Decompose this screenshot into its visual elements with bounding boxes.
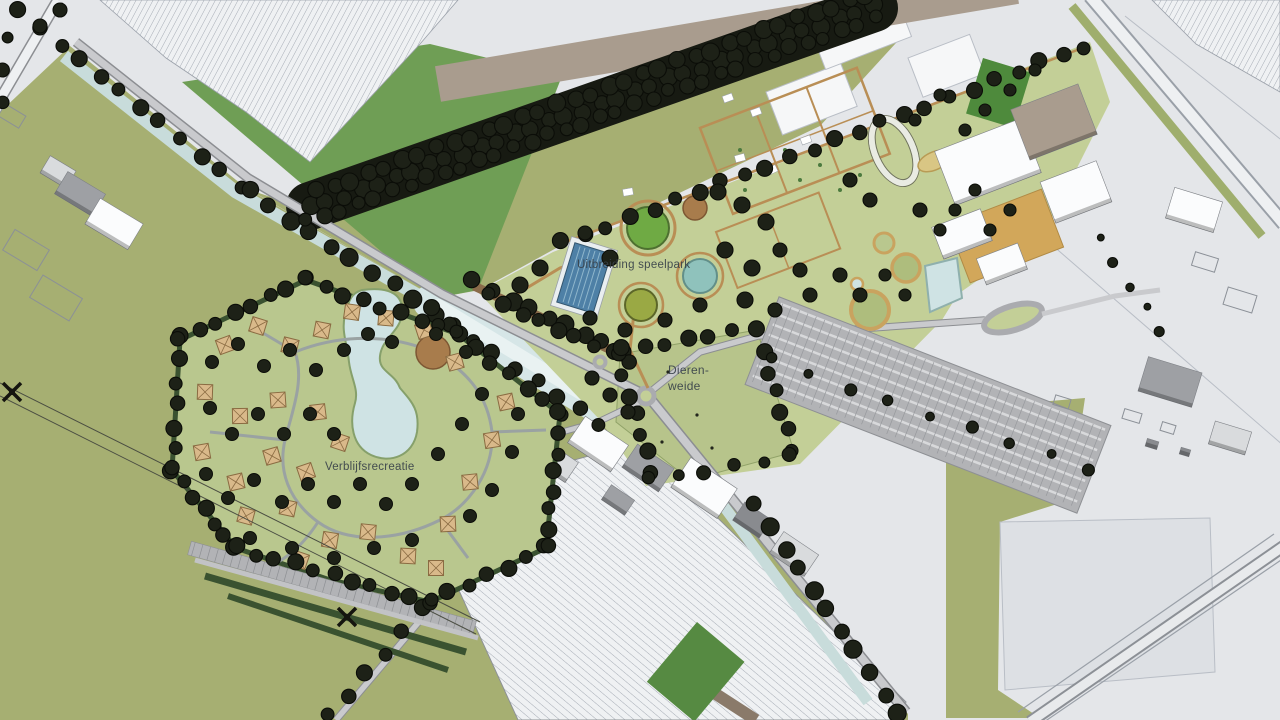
kiosk [622,188,633,197]
chalet [440,516,456,532]
chalet [429,561,444,576]
chalet [321,531,338,548]
label-dierenweide: Dieren- weide [668,362,709,394]
site-plan-canvas [0,0,1280,720]
label-uitbreiding-speelpark: Uitbreiding speelpark [577,258,690,274]
chalet [313,321,331,339]
chalet [497,393,515,411]
label-verblijfsrecreatie: Verblijfsrecreatie [325,460,415,476]
label-dierenweide-line2: weide [668,378,709,394]
chalet [197,384,213,400]
site-plan-map: Uitbreiding speelpark Dieren- weide Verb… [0,0,1280,720]
chalet [462,474,478,490]
chalet [400,548,416,564]
chalet [344,304,361,321]
roundabout [638,388,654,404]
label-dierenweide-line1: Dieren- [668,362,709,378]
chalet [232,408,247,423]
chalet [360,524,376,540]
chalet [227,473,245,491]
chalet [270,392,286,408]
chalet [193,443,210,460]
chalet [483,431,500,448]
